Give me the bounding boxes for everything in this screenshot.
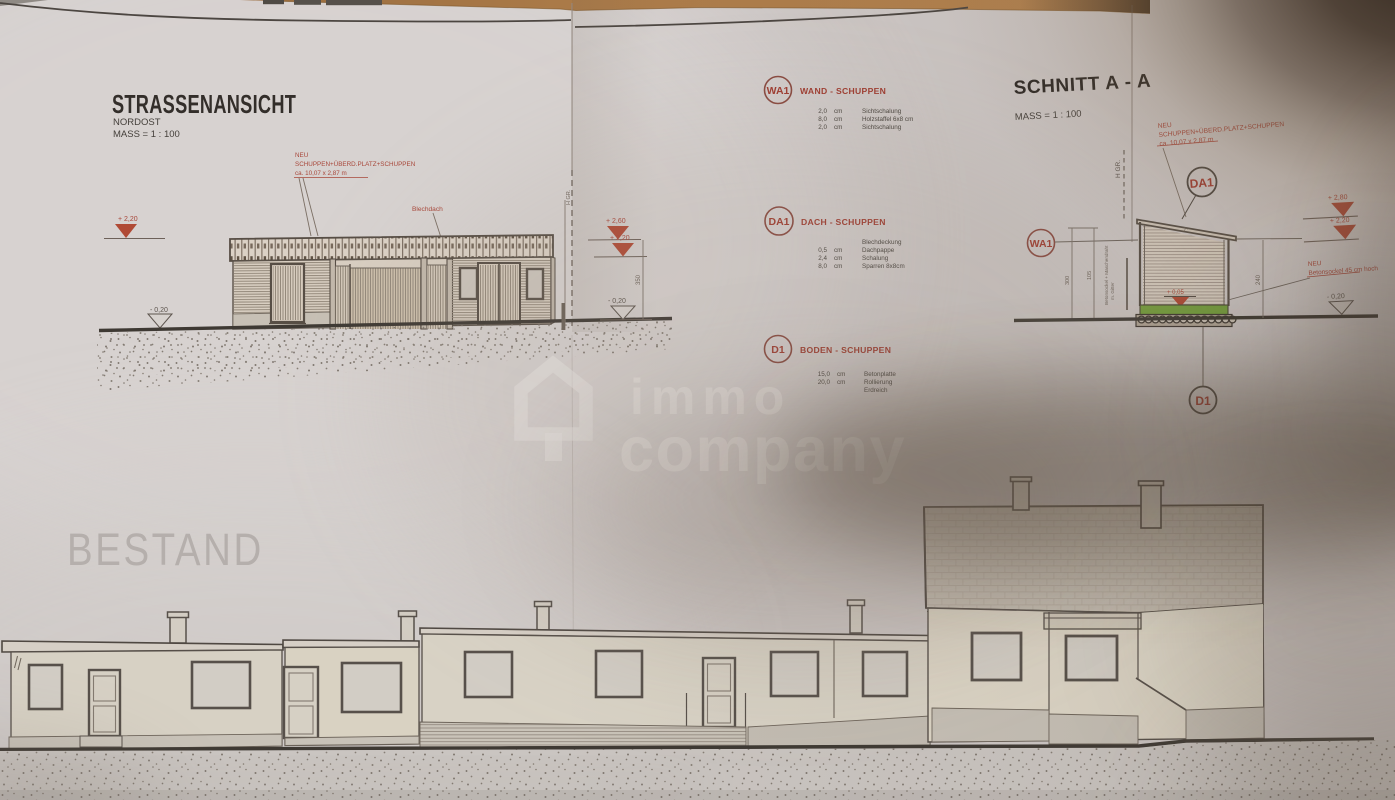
svg-text:ca. 10,07 x 2,87 m: ca. 10,07 x 2,87 m (295, 170, 347, 177)
svg-text:BESTAND: BESTAND (67, 524, 264, 575)
svg-text:+ 2,20: + 2,20 (118, 216, 138, 223)
svg-text:NORDOST: NORDOST (113, 117, 161, 128)
svg-text:SCHUPPEN+ÜBERD.PLATZ+SCHUPPEN: SCHUPPEN+ÜBERD.PLATZ+SCHUPPEN (295, 160, 416, 168)
svg-text:MASS = 1 : 100: MASS = 1 : 100 (113, 129, 180, 140)
svg-text:Blechdach: Blechdach (412, 206, 443, 213)
svg-text:- 0,20: - 0,20 (150, 307, 168, 314)
svg-text:STRASSENANSICHT: STRASSENANSICHT (112, 90, 296, 119)
svg-text:NEU: NEU (295, 152, 309, 159)
